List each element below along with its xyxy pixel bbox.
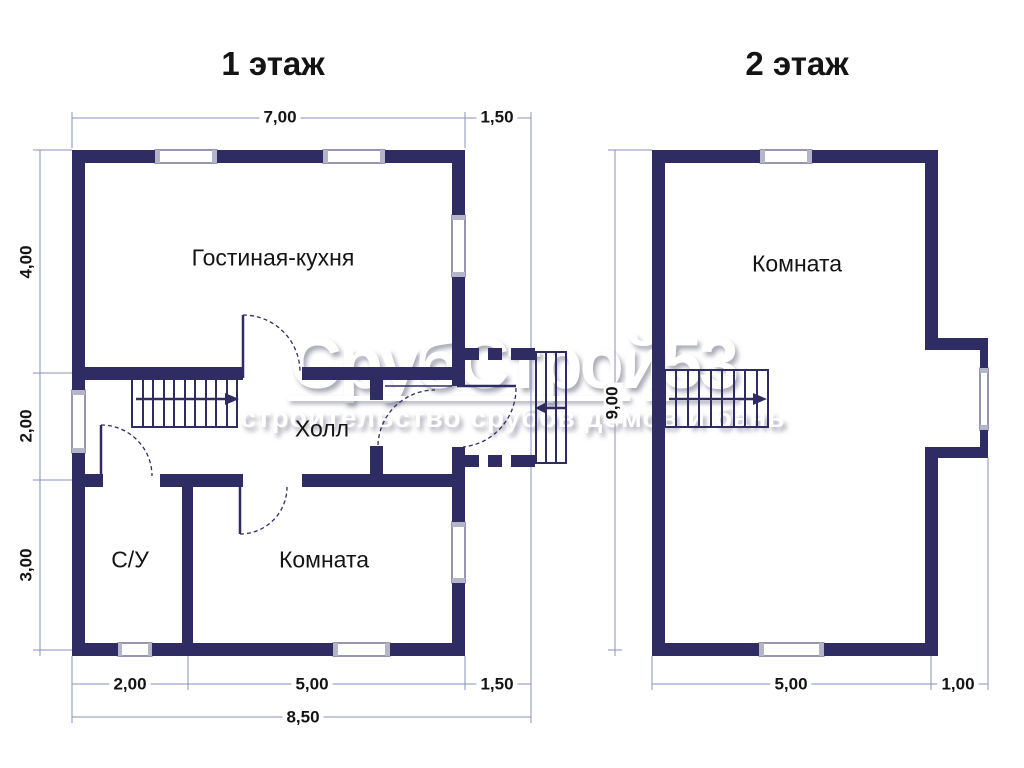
floor1-title: 1 этаж <box>221 45 324 83</box>
window <box>323 150 385 163</box>
dim-floor1-left-mid: 2,00 <box>18 405 37 446</box>
room-door-swing <box>240 487 287 534</box>
window <box>452 522 465 583</box>
window <box>155 150 217 163</box>
vestibule-door-swing <box>378 390 435 445</box>
dim-floor1-left-top: 4,00 <box>18 241 37 282</box>
floor1-doors <box>101 315 435 534</box>
room-label-bathroom: С/У <box>111 547 149 574</box>
room-label-living-kitchen: Гостиная-кухня <box>192 245 355 272</box>
floor2-windows <box>759 150 988 656</box>
window <box>118 643 152 656</box>
dim-floor2-bottom-right: 1,00 <box>937 676 978 695</box>
window <box>759 643 824 656</box>
window <box>980 368 988 430</box>
dim-floor1-bottom-mid: 5,00 <box>291 676 332 695</box>
dim-floor1-top-main: 7,00 <box>259 109 300 128</box>
dim-floor2-bottom-main: 5,00 <box>770 676 811 695</box>
floorplan-page: СрубСтрой53 строительство срубов домов и… <box>0 0 1024 768</box>
window <box>72 390 85 453</box>
floor1-windows <box>72 150 465 656</box>
dim-floor1-left-bottom: 3,00 <box>18 544 37 585</box>
entrance-door-swing <box>463 388 516 447</box>
dim-floor1-top-porch: 1,50 <box>476 109 517 128</box>
floor1-porch <box>385 348 566 467</box>
floor2-walls <box>652 150 988 656</box>
dim-floor2-height: 9,00 <box>604 382 623 423</box>
floor1-walls <box>72 150 465 656</box>
stair-arrow-icon <box>753 393 767 405</box>
room-label-hall: Холл <box>295 416 349 443</box>
bathroom-door-swing <box>101 425 152 476</box>
entry-steps <box>535 352 566 463</box>
window <box>760 150 812 163</box>
window <box>333 643 390 656</box>
floor1-staircase <box>132 377 239 427</box>
floor2-staircase <box>665 370 768 427</box>
dim-floor1-bottom-left: 2,00 <box>109 676 150 695</box>
living-room-door-swing <box>243 315 300 372</box>
dim-floor1-bottom-right: 1,50 <box>476 676 517 695</box>
dim-floor1-bottom-total: 8,50 <box>282 709 323 728</box>
room-label-room-floor1: Комната <box>279 547 369 574</box>
window <box>452 215 465 277</box>
floor2-title: 2 этаж <box>745 45 848 83</box>
room-label-room-floor2: Комната <box>752 251 842 278</box>
